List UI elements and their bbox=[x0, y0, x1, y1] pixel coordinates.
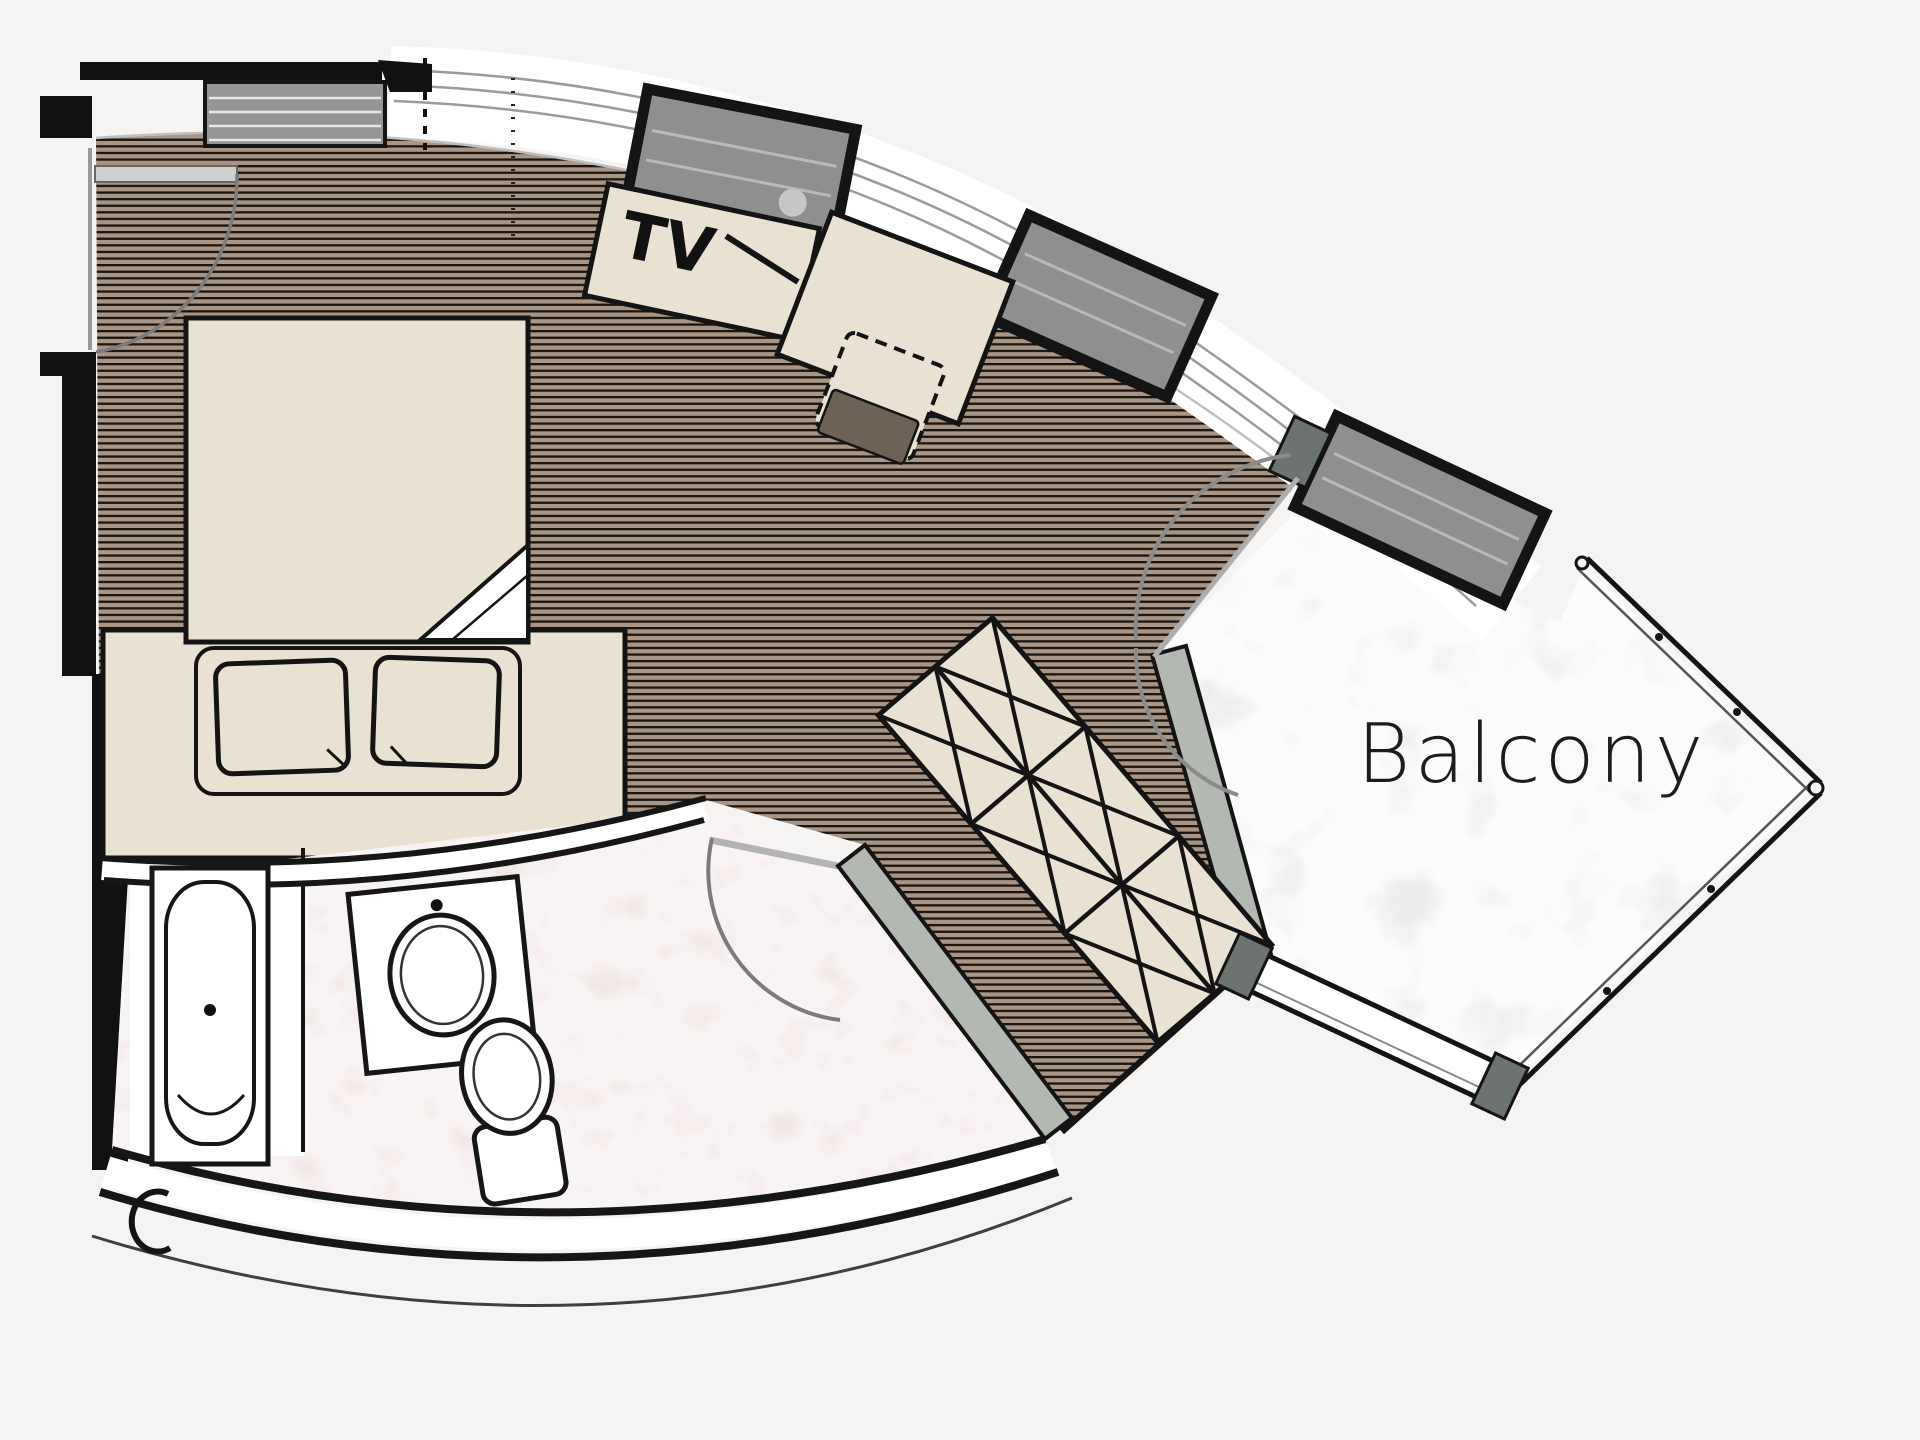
left-wall-stub bbox=[40, 352, 62, 376]
balcony-label: Balcony bbox=[1357, 707, 1707, 802]
top-wall bbox=[80, 62, 382, 80]
bathtub bbox=[152, 868, 268, 1164]
entrance-door-leaf bbox=[95, 166, 237, 182]
pillow-1 bbox=[215, 660, 349, 774]
bed-platform bbox=[103, 630, 625, 858]
left-wall-upper-stub bbox=[40, 96, 92, 138]
dresser bbox=[205, 82, 385, 146]
pillow-2 bbox=[372, 657, 500, 767]
floor-plan-page: Balcony bbox=[0, 0, 1920, 1440]
tub-drain bbox=[204, 1004, 216, 1016]
left-wall bbox=[62, 352, 96, 676]
floor-plan: Balcony bbox=[0, 0, 1920, 1440]
